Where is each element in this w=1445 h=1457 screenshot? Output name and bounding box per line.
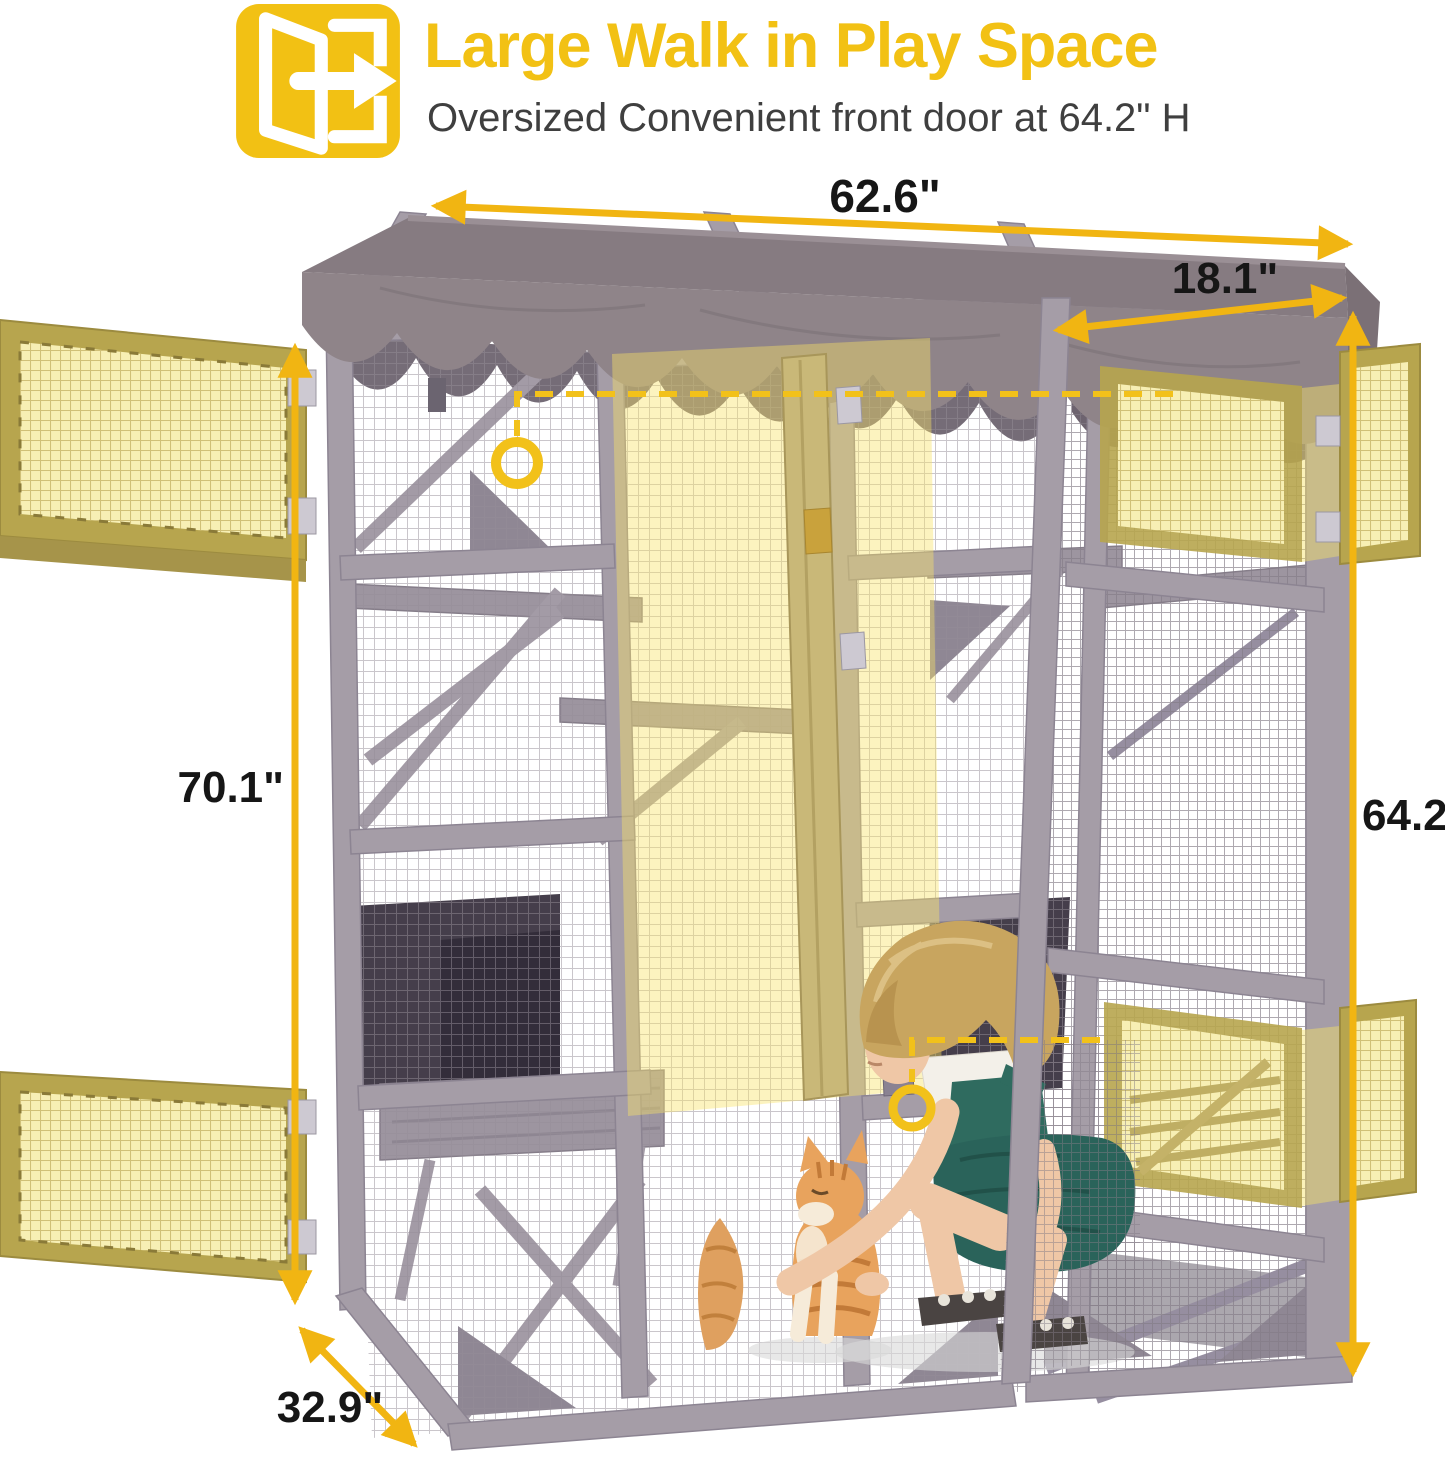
catio-illustration: 62.6" 18.1" 70.1" 64.2" 32.9" [0, 0, 1445, 1457]
dim-bottom-depth-label: 32.9" [277, 1383, 384, 1432]
dim-top-width-label: 62.6" [829, 170, 940, 222]
dim-left-height-label: 70.1" [178, 763, 285, 812]
dim-right-height-label: 64.2" [1362, 791, 1445, 840]
dim-top-depth-label: 18.1" [1172, 254, 1279, 303]
open-window-bottom-right [1104, 1000, 1416, 1208]
open-door-bottom-left [0, 1072, 316, 1282]
product-feature-graphic: Large Walk in Play Space Oversized Conve… [0, 0, 1445, 1457]
open-door-top-left [0, 320, 316, 582]
